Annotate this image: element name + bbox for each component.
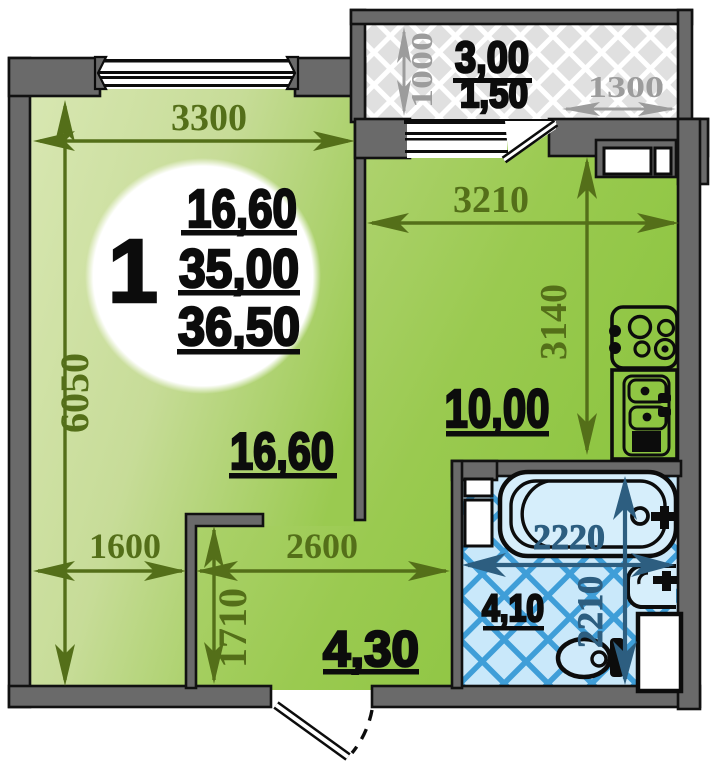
svg-text:3140: 3140 xyxy=(533,284,575,360)
svg-text:1600: 1600 xyxy=(89,526,161,566)
svg-text:2220: 2220 xyxy=(533,517,605,557)
svg-text:6050: 6050 xyxy=(52,353,97,433)
svg-text:16,60: 16,60 xyxy=(230,423,334,481)
svg-text:10,00: 10,00 xyxy=(445,379,550,439)
svg-text:1: 1 xyxy=(108,222,158,322)
svg-text:1300: 1300 xyxy=(588,69,664,104)
svg-text:1000: 1000 xyxy=(404,32,439,108)
svg-text:3300: 3300 xyxy=(171,97,247,139)
svg-text:2600: 2600 xyxy=(286,526,358,566)
svg-text:1,50: 1,50 xyxy=(460,73,528,116)
svg-text:2210: 2210 xyxy=(570,576,610,648)
svg-text:1710: 1710 xyxy=(210,588,255,668)
svg-text:4,30: 4,30 xyxy=(323,621,419,677)
svg-text:36,50: 36,50 xyxy=(178,297,300,357)
svg-text:4,10: 4,10 xyxy=(482,588,544,630)
svg-text:3210: 3210 xyxy=(453,179,529,221)
